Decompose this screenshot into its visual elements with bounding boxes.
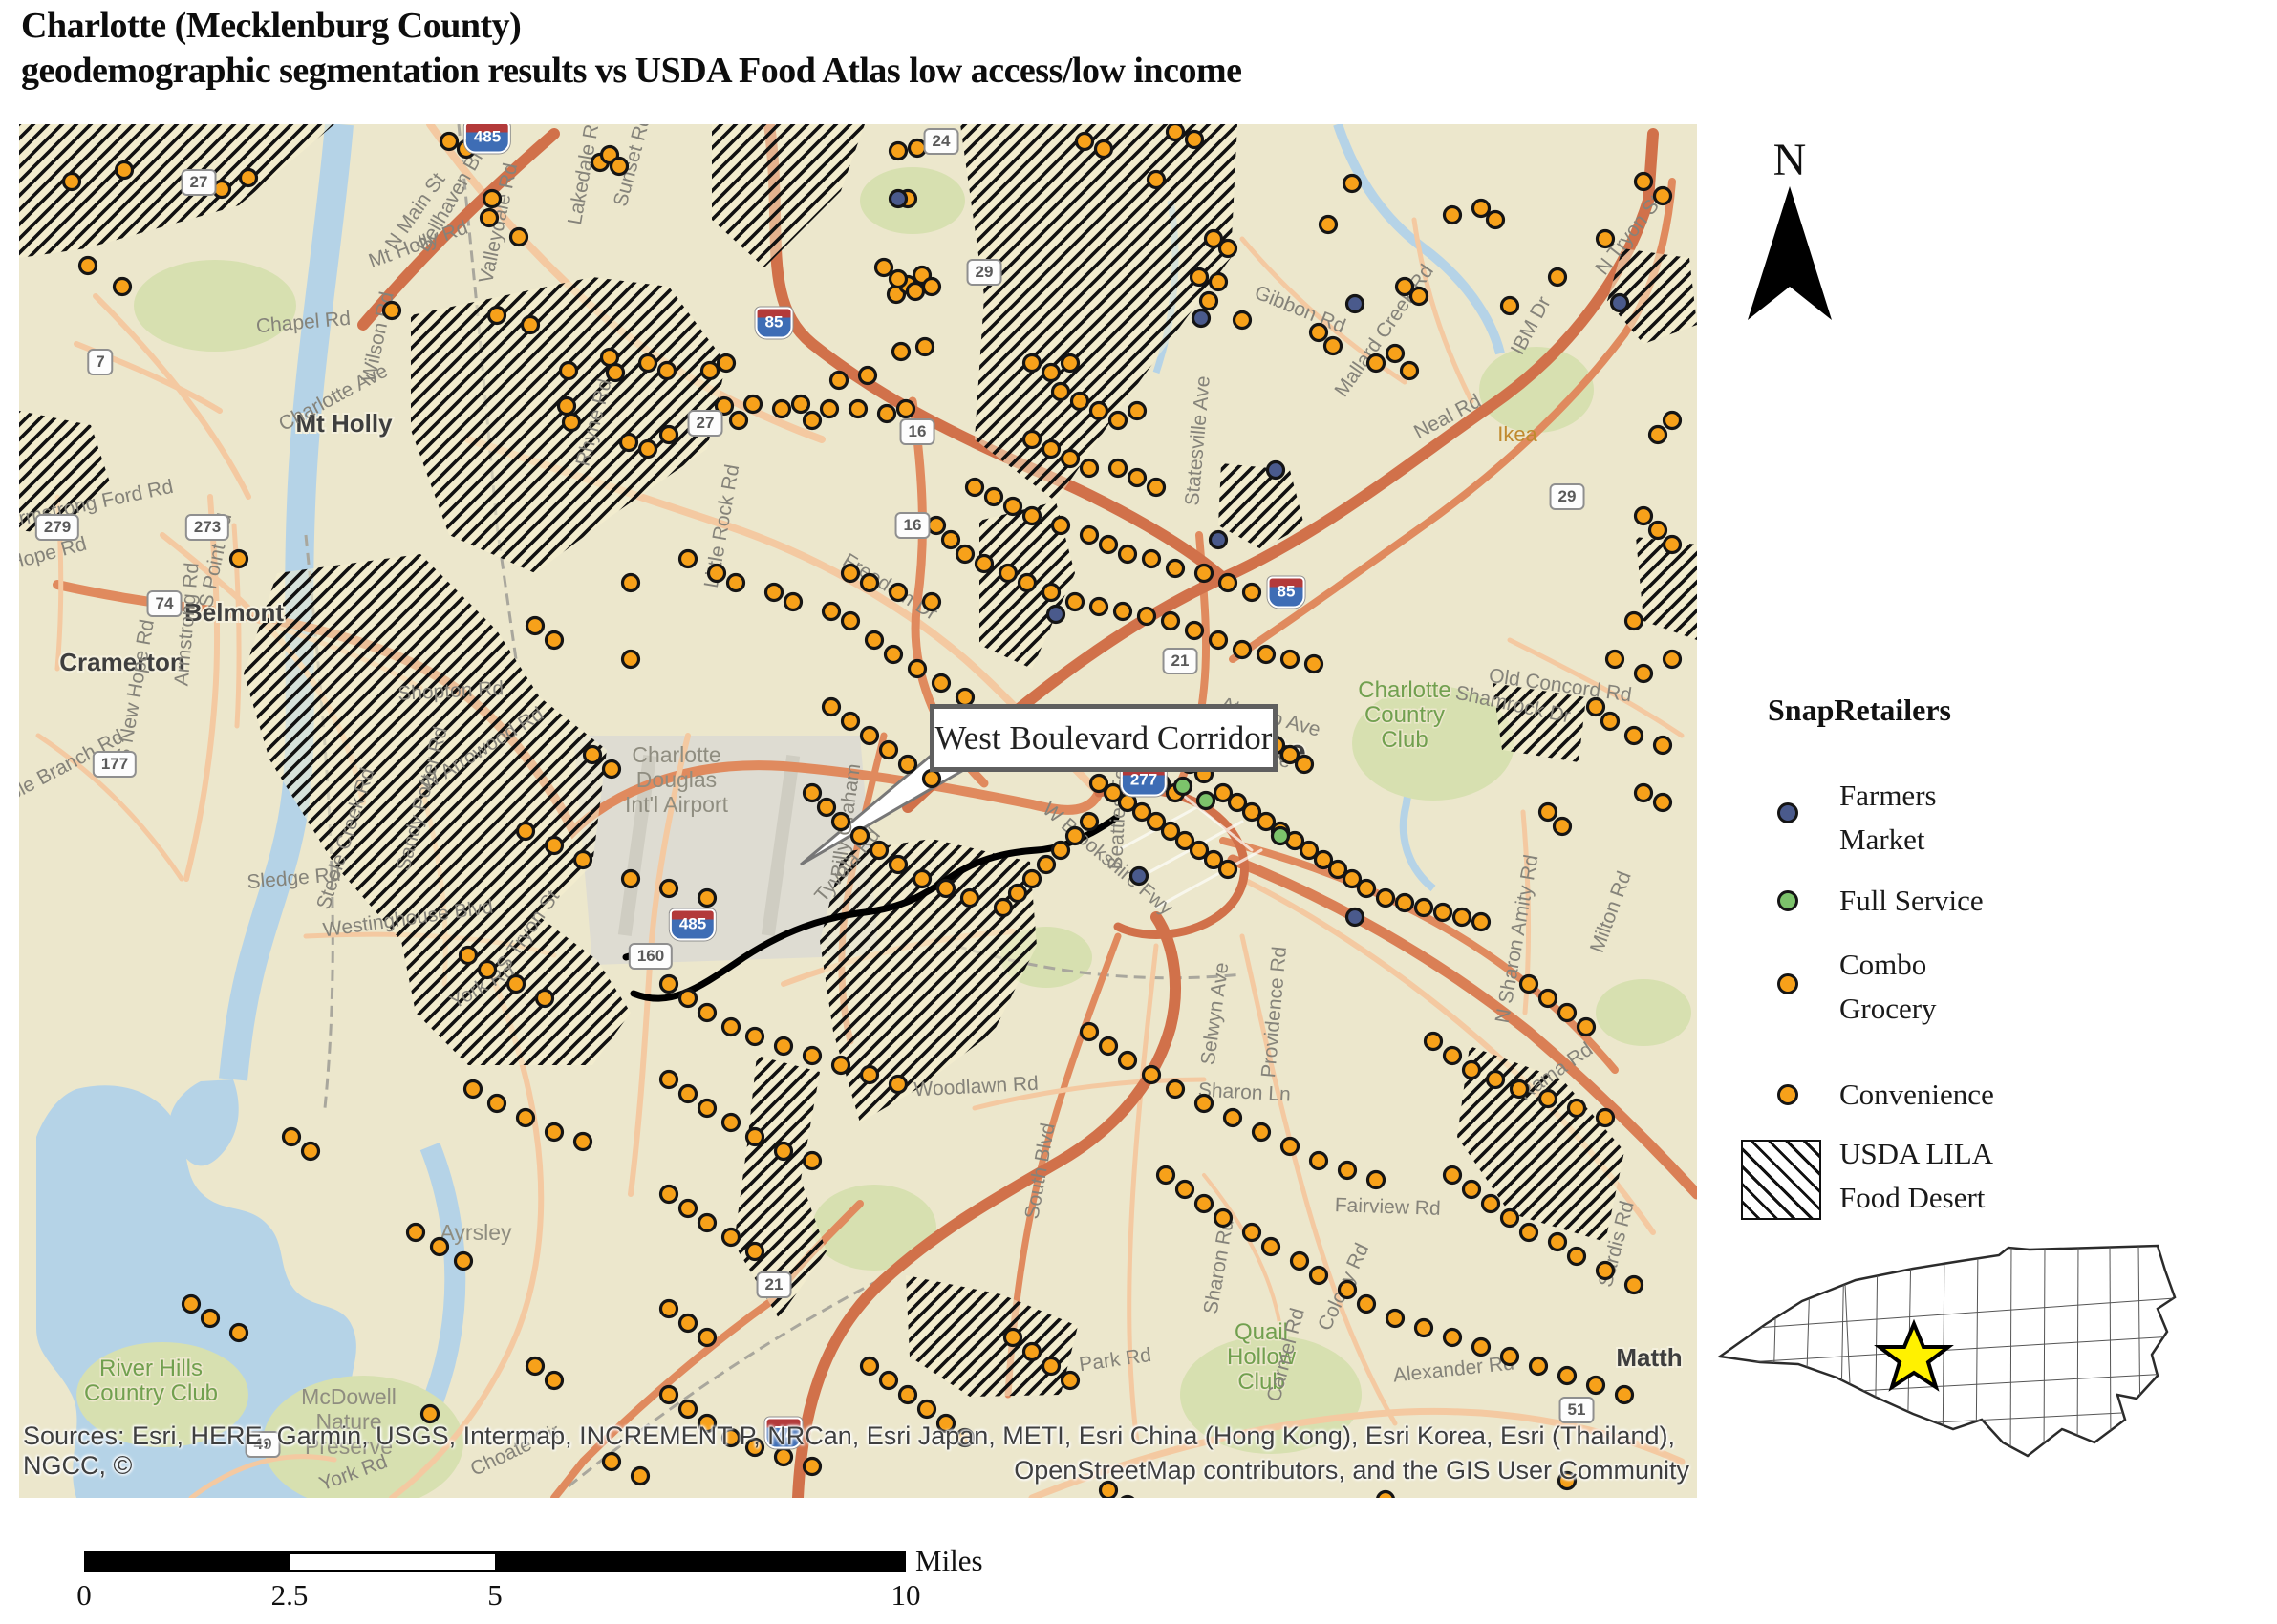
convenience-or-combo-grocery-dot [1043,441,1060,458]
convenience-or-combo-grocery-dot [862,1358,878,1375]
convenience-or-combo-grocery-dot [1101,1038,1117,1055]
convenience-or-combo-grocery-dot [699,1100,716,1117]
convenience-or-combo-grocery-dot [1110,460,1127,477]
convenience-or-combo-grocery-dot [1091,403,1107,419]
convenience-or-combo-grocery-dot [1636,666,1652,682]
convenience-or-combo-grocery-dot [891,271,907,288]
convenience-or-combo-grocery-dot [1402,363,1418,379]
convenience-or-combo-grocery-dot [1077,134,1093,150]
convenience-or-combo-grocery-dot [1244,585,1260,601]
road-label: Sharon Rd [1200,1217,1238,1315]
convenience-or-combo-grocery-dot [1244,1225,1260,1241]
convenience-or-combo-grocery-dot [1655,188,1671,204]
convenience-or-combo-grocery-dot [1110,413,1127,429]
convenience-or-combo-grocery-dot [1665,537,1681,553]
convenience-or-combo-grocery-dot [924,771,940,787]
convenience-or-combo-grocery-dot [608,365,624,381]
convenience-or-combo-grocery-dot [831,373,848,389]
legend-label: Combo [1839,943,1937,987]
convenience-or-combo-grocery-dot [1263,1239,1279,1255]
convenience-or-combo-grocery-dot [661,1301,677,1317]
convenience-or-combo-grocery-dot [1325,338,1342,354]
convenience-or-combo-grocery-dot [1220,862,1236,878]
farmers-market-dot [891,191,907,207]
convenience-or-combo-grocery-dot [384,303,400,319]
convenience-or-combo-grocery-dot [1483,1196,1499,1212]
convenience-or-combo-grocery-dot [957,546,974,563]
convenience-or-combo-grocery-dot [489,308,505,324]
convenience-or-combo-grocery-dot [1426,1034,1442,1050]
convenience-or-combo-grocery-dot [833,814,849,830]
convenience-or-combo-grocery-dot [862,1067,878,1083]
convenience-or-combo-grocery-dot [547,1124,563,1141]
convenience-or-combo-grocery-dot [559,398,575,415]
convenience-or-combo-grocery-dot [962,890,978,907]
convenience-or-combo-grocery-dot [1416,900,1432,916]
legend-title: SnapRetailers [1768,693,2179,728]
route-shield-177: 177 [93,751,137,778]
route-shield-29: 29 [1550,483,1585,510]
convenience-or-combo-grocery-dot [1101,537,1117,553]
convenience-or-combo-grocery-dot [1067,594,1084,610]
route-shield-7: 7 [87,349,113,375]
full-service-dot-icon [1777,890,1798,911]
convenience-or-combo-grocery-dot [480,962,496,978]
convenience-or-combo-grocery-dot [1598,1110,1614,1126]
convenience-or-combo-grocery-dot [1096,141,1112,158]
convenience-or-combo-grocery-dot [1598,231,1614,247]
convenience-or-combo-grocery-dot [805,413,821,429]
north-arrow-icon [1746,186,1834,322]
convenience-or-combo-grocery-dot [938,881,955,897]
convenience-or-combo-grocery-dot [862,575,878,591]
convenience-or-combo-grocery-dot [1144,551,1160,567]
convenience-or-combo-grocery-dot [1120,1497,1136,1499]
convenience-or-combo-grocery-dot [919,1401,935,1418]
convenience-or-combo-grocery-dot [1559,1005,1576,1021]
convenience-or-combo-grocery-dot [408,1225,424,1241]
convenience-or-combo-grocery-dot [1005,1330,1021,1346]
convenience-or-combo-grocery-dot [661,976,677,993]
convenience-or-combo-grocery-dot [1650,427,1666,443]
convenience-or-combo-grocery-dot [1512,1081,1528,1098]
place-label: Ikea [1497,422,1537,446]
scale-unit-label: Miles [915,1544,983,1578]
north-carolina-map-icon [1710,1240,2193,1474]
convenience-or-combo-grocery-dot [1020,575,1036,591]
convenience-or-combo-grocery-dot [862,728,878,744]
farmers-market-dot [1048,607,1064,623]
interstate-shield-485: 485 [670,909,716,941]
convenience-or-combo-grocery-dot [1196,1196,1213,1212]
full-service-dot [1198,793,1214,809]
convenience-or-combo-grocery-dot [231,1325,247,1341]
convenience-or-combo-grocery-dot [850,401,867,417]
convenience-or-combo-grocery-dot [461,948,477,964]
convenience-or-combo-grocery-dot [1177,1182,1193,1198]
convenience-or-combo-grocery-dot [547,838,563,854]
scale-tick: 2.5 [271,1578,309,1613]
convenience-or-combo-grocery-dot [1005,499,1021,515]
convenience-or-combo-grocery-dot [805,1048,821,1064]
convenience-or-combo-grocery-dot [881,1373,897,1389]
convenience-or-combo-grocery-dot [852,828,869,844]
scale-bar [84,1551,906,1572]
convenience-or-combo-grocery-dot [1665,652,1681,668]
convenience-or-combo-grocery-dot [623,652,639,668]
convenience-or-combo-grocery-dot [465,1081,482,1098]
convenience-or-combo-grocery-dot [1626,613,1643,630]
west-boulevard-corridor-callout: West Boulevard Corridor [930,704,1278,772]
convenience-or-combo-grocery-dot [1435,905,1451,921]
convenience-or-combo-grocery-dot [1024,432,1041,448]
map-title-line1: Charlotte (Mecklenburg County) [21,4,1242,49]
convenience-or-combo-grocery-dot [1368,1172,1385,1188]
legend-label: Convenience [1839,1073,1994,1117]
convenience-or-combo-grocery-dot [1158,1167,1174,1184]
convenience-or-combo-grocery-dot [1129,403,1146,419]
convenience-or-combo-grocery-dot [876,260,892,276]
convenience-or-combo-grocery-dot [943,532,959,548]
convenience-or-combo-grocery-dot [723,1019,740,1036]
convenience-or-combo-grocery-dot [1196,566,1213,582]
convenience-or-combo-grocery-dot [1215,1210,1232,1227]
scale-tick: 10 [891,1578,921,1613]
convenience-or-combo-grocery-dot [967,480,983,496]
convenience-or-combo-grocery-dot [1626,1277,1643,1293]
north-arrow-label: N [1746,134,1834,186]
convenience-or-combo-grocery-dot [1378,1492,1394,1499]
convenience-or-combo-grocery-dot [203,1311,219,1327]
convenience-or-combo-grocery-dot [659,363,676,379]
interstate-shield-85: 85 [1268,577,1305,609]
convenience-or-combo-grocery-dot [680,1315,697,1332]
route-shield-16: 16 [895,512,931,539]
convenience-or-combo-grocery-dot [774,401,790,417]
convenience-or-combo-grocery-dot [1311,325,1327,341]
road-label: Selwyn Ave [1197,961,1234,1066]
convenience-or-combo-grocery-dot [867,632,883,649]
convenience-or-combo-grocery-dot [1201,293,1217,310]
convenience-or-combo-grocery-dot [1220,241,1236,257]
convenience-or-combo-grocery-dot [1024,355,1041,372]
convenience-or-combo-grocery-dot [1665,413,1681,429]
convenience-or-combo-grocery-dot [303,1143,319,1160]
convenience-or-combo-grocery-dot [623,575,639,591]
convenience-or-combo-grocery-dot [996,900,1012,916]
convenience-or-combo-grocery-dot [891,585,907,601]
convenience-or-combo-grocery-dot [908,284,924,300]
farmers-market-dot [1347,296,1364,312]
convenience-or-combo-grocery-dot [441,134,458,150]
legend-label: USDA LILA [1839,1132,1993,1176]
convenience-or-combo-grocery-dot [523,317,539,333]
convenience-or-combo-grocery-dot [1473,914,1490,930]
convenience-or-combo-grocery-dot [661,1072,677,1088]
north-carolina-inset [1710,1240,2193,1479]
route-shield-273: 273 [185,514,229,541]
farmers-market-dot [1347,909,1364,926]
convenience-or-combo-grocery-dot [1636,508,1652,524]
convenience-or-combo-grocery-dot [1569,1249,1585,1265]
convenience-or-combo-grocery-dot [511,229,527,246]
convenience-or-combo-grocery-dot [1617,1387,1633,1403]
convenience-or-combo-grocery-dot [1187,132,1203,148]
food-desert-hatch-swatch-icon [1741,1140,1821,1220]
convenience-or-combo-grocery-dot [1292,1253,1308,1270]
convenience-or-combo-grocery-dot [1043,1358,1060,1375]
convenience-or-combo-grocery-dot [1225,1110,1241,1126]
convenience-or-combo-grocery-dot [1168,1081,1184,1098]
convenience-or-combo-grocery-dot [241,170,257,186]
convenience-or-combo-grocery-dot [699,1330,716,1346]
convenience-or-combo-grocery-dot [1655,737,1671,754]
convenience-or-combo-grocery-dot [1187,623,1203,639]
convenience-or-combo-grocery-dot [1063,451,1079,467]
legend-label: Grocery [1839,987,1937,1031]
convenience-or-combo-grocery-dot [518,1110,534,1126]
legend-label: Farmers [1839,774,1937,818]
convenience-or-combo-grocery-dot [1043,585,1060,601]
convenience-or-combo-grocery-dot [1311,1268,1327,1284]
convenience-or-combo-grocery-dot [1340,1282,1356,1298]
convenience-or-combo-grocery-dot [1258,647,1275,663]
convenience-or-combo-grocery-dot [1196,1096,1213,1112]
north-arrow: N [1746,134,1834,327]
convenience-or-combo-grocery-dot [1636,785,1652,801]
convenience-or-combo-grocery-dot [1282,1139,1299,1155]
convenience-or-combo-grocery-dot [891,857,907,873]
convenience-or-combo-grocery-dot [731,413,747,429]
convenience-or-combo-grocery-dot [680,1401,697,1418]
convenience-or-combo-grocery-dot [1024,508,1041,524]
convenience-dot-icon [1777,1084,1798,1105]
convenience-or-combo-grocery-dot [1211,632,1227,649]
road-label: N Sharon Amity Rd [1492,853,1543,1025]
convenience-or-combo-grocery-dot [1024,871,1041,887]
convenience-or-combo-grocery-dot [231,551,247,567]
convenience-or-combo-grocery-dot [640,355,656,372]
convenience-or-combo-grocery-dot [1502,1210,1518,1227]
route-shield-51: 51 [1559,1397,1595,1423]
route-shield-27: 27 [182,169,217,196]
convenience-or-combo-grocery-dot [1139,609,1155,625]
convenience-or-combo-grocery-dot [917,339,934,355]
convenience-or-combo-grocery-dot [1000,566,1017,582]
convenience-or-combo-grocery-dot [1521,1225,1537,1241]
convenience-or-combo-grocery-dot [747,1244,763,1260]
convenience-or-combo-grocery-dot [776,1038,792,1055]
convenience-or-combo-grocery-dot [1053,518,1069,534]
full-service-dot [1273,828,1289,844]
convenience-or-combo-grocery-dot [1024,1344,1041,1360]
convenience-or-combo-grocery-dot [1163,613,1179,630]
convenience-or-combo-grocery-dot [1072,394,1088,410]
convenience-or-combo-grocery-dot [1220,575,1236,591]
convenience-or-combo-grocery-dot [537,991,553,1007]
sources-attribution-line2: OpenStreetMap contributors, and the GIS … [1014,1456,1689,1485]
convenience-or-combo-grocery-dot [1626,728,1643,744]
convenience-or-combo-grocery-dot [1053,843,1069,859]
convenience-or-combo-grocery-dot [661,881,677,897]
convenience-or-combo-grocery-dot [924,594,940,610]
convenience-or-combo-grocery-dot [612,159,628,175]
convenience-or-combo-grocery-dot [1416,1320,1432,1336]
convenience-or-combo-grocery-dot [766,585,783,601]
convenience-or-combo-grocery-dot [1082,460,1098,477]
road-label: Providence Rd [1257,946,1291,1079]
convenience-or-combo-grocery-dot [1235,312,1251,329]
convenience-or-combo-grocery-dot [604,761,620,778]
convenience-or-combo-grocery-dot [1569,1100,1585,1117]
road-label: Park Rd [1078,1344,1152,1376]
convenience-or-combo-grocery-dot [1168,561,1184,577]
convenience-or-combo-grocery-dot [871,843,888,859]
convenience-or-combo-grocery-dot [547,1373,563,1389]
convenience-or-combo-grocery-dot [1144,1067,1160,1083]
convenience-or-combo-grocery-dot [929,518,945,534]
convenience-or-combo-grocery-dot [819,800,835,816]
map-figure: Mt HollyBelmontCramertonAyrsleyMatthtteI… [19,124,1697,1498]
convenience-or-combo-grocery-dot [900,1387,916,1403]
road-label: Alexander Rd [1392,1352,1515,1386]
convenience-or-combo-grocery-dot [900,757,916,773]
convenience-or-combo-grocery-dot [1445,1330,1461,1346]
convenience-or-combo-grocery-dot [1650,523,1666,539]
convenience-or-combo-grocery-dot [934,675,950,692]
place-label: Ayrsley [440,1220,512,1245]
farmers-market-dot-icon [1777,802,1798,823]
convenience-or-combo-grocery-dot [1082,527,1098,544]
convenience-or-combo-grocery-dot [924,279,940,295]
convenience-or-combo-grocery-dot [1149,480,1165,496]
convenience-or-combo-grocery-dot [1488,212,1504,228]
convenience-or-combo-grocery-dot [1540,1091,1557,1107]
convenience-or-combo-grocery-dot [623,871,639,887]
convenience-or-combo-grocery-dot [64,174,80,190]
farmers-market-dot [1612,295,1628,311]
route-shield-74: 74 [147,590,183,617]
convenience-or-combo-grocery-dot [680,1201,697,1217]
convenience-or-combo-grocery-dot [886,647,902,663]
convenience-or-combo-grocery-dot [1120,1053,1136,1069]
convenience-or-combo-grocery-dot [1502,298,1518,314]
place-label: River HillsCountry Club [84,1356,218,1406]
convenience-or-combo-grocery-dot [661,427,677,443]
convenience-or-combo-grocery-dot [80,258,97,274]
combo-grocery-dot-icon [1777,973,1798,994]
convenience-or-combo-grocery-dot [1579,1019,1595,1036]
road-label: Milton Rd [1586,868,1636,955]
convenience-or-combo-grocery-dot [1521,976,1537,993]
road-label: Statesville Ave [1181,375,1214,507]
full-service-dot [1175,779,1192,795]
convenience-or-combo-grocery-dot [1550,1234,1566,1250]
convenience-or-combo-grocery-dot [1368,355,1385,372]
convenience-or-combo-grocery-dot [508,976,525,993]
convenience-or-combo-grocery-dot [575,1134,591,1150]
convenience-or-combo-grocery-dot [527,1358,544,1375]
convenience-or-combo-grocery-dot [482,210,498,226]
road-label: Gibbon Rd [1252,282,1349,338]
convenience-or-combo-grocery-dot [898,401,914,417]
route-shield-21: 21 [1163,648,1198,674]
convenience-or-combo-grocery-dot [1387,1311,1404,1327]
route-shield-29: 29 [967,259,1002,286]
convenience-or-combo-grocery-dot [1321,217,1337,233]
convenience-or-combo-grocery-dot [699,1005,716,1021]
convenience-or-combo-grocery-dot [986,489,1002,505]
convenience-or-combo-grocery-dot [661,1387,677,1403]
convenience-or-combo-grocery-dot [785,594,802,610]
route-shield-16: 16 [900,418,935,445]
place-label: Matth [1616,1343,1682,1372]
convenience-or-combo-grocery-dot [1115,604,1131,620]
scale-tick: 5 [487,1578,503,1613]
convenience-or-combo-grocery-dot [723,1229,740,1246]
convenience-or-combo-grocery-dot [1559,1368,1576,1384]
map-title: Charlotte (Mecklenburg County) geodemogr… [21,4,1242,94]
page: { "title": { "line1": "Charlotte (Meckle… [0,0,2277,1624]
convenience-or-combo-grocery-dot [1254,1124,1270,1141]
farmers-market-dot [1131,868,1148,885]
convenience-or-combo-grocery-dot [747,1129,763,1145]
road-label: Mallard Creek Rd [1330,261,1438,401]
convenience-or-combo-grocery-dot [621,435,637,451]
convenience-or-combo-grocery-dot [1297,757,1313,773]
convenience-or-combo-grocery-dot [699,890,716,907]
convenience-or-combo-grocery-dot [561,363,577,379]
convenience-or-combo-grocery-dot [1588,1378,1604,1394]
convenience-or-combo-grocery-dot [1555,819,1571,835]
convenience-or-combo-grocery-dot [977,556,993,572]
convenience-or-combo-grocery-dot [1091,599,1107,615]
convenience-or-combo-grocery-dot [1411,288,1428,305]
convenience-or-combo-grocery-dot [719,355,735,372]
convenience-or-combo-grocery-dot [1340,1163,1356,1179]
convenience-or-combo-grocery-dot [728,575,744,591]
convenience-or-combo-grocery-dot [518,823,534,840]
convenience-or-combo-grocery-dot [1120,546,1136,563]
convenience-or-combo-grocery-dot [1311,1153,1327,1169]
convenience-or-combo-grocery-dot [1282,652,1299,668]
convenience-or-combo-grocery-dot [1540,804,1557,821]
convenience-or-combo-grocery-dot [893,344,910,360]
road-label: Lakedale Rd [564,124,605,226]
convenience-or-combo-grocery-dot [805,1153,821,1169]
convenience-or-combo-grocery-dot [914,871,931,887]
convenience-or-combo-grocery-dot [527,618,544,634]
convenience-or-combo-grocery-dot [1067,828,1084,844]
convenience-or-combo-grocery-dot [1397,895,1413,911]
convenience-or-combo-grocery-dot [843,566,859,582]
convenience-or-combo-grocery-dot [776,1143,792,1160]
convenience-or-combo-grocery-dot [723,1115,740,1131]
convenience-or-combo-grocery-dot [489,1096,505,1112]
convenience-or-combo-grocery-dot [680,551,697,567]
route-shield-27: 27 [688,410,723,437]
convenience-or-combo-grocery-dot [640,441,656,458]
convenience-or-combo-grocery-dot [1211,274,1227,290]
farmers-market-dot [1268,462,1284,479]
convenience-or-combo-grocery-dot [879,406,895,422]
route-shield-279: 279 [35,514,79,541]
place-label: CharlotteDouglasInt'l Airport [625,742,729,817]
convenience-or-combo-grocery-dot [891,143,907,160]
convenience-or-combo-grocery-dot [284,1129,300,1145]
convenience-or-combo-grocery-dot [1306,656,1322,673]
legend-label: Food Desert [1839,1176,1993,1220]
